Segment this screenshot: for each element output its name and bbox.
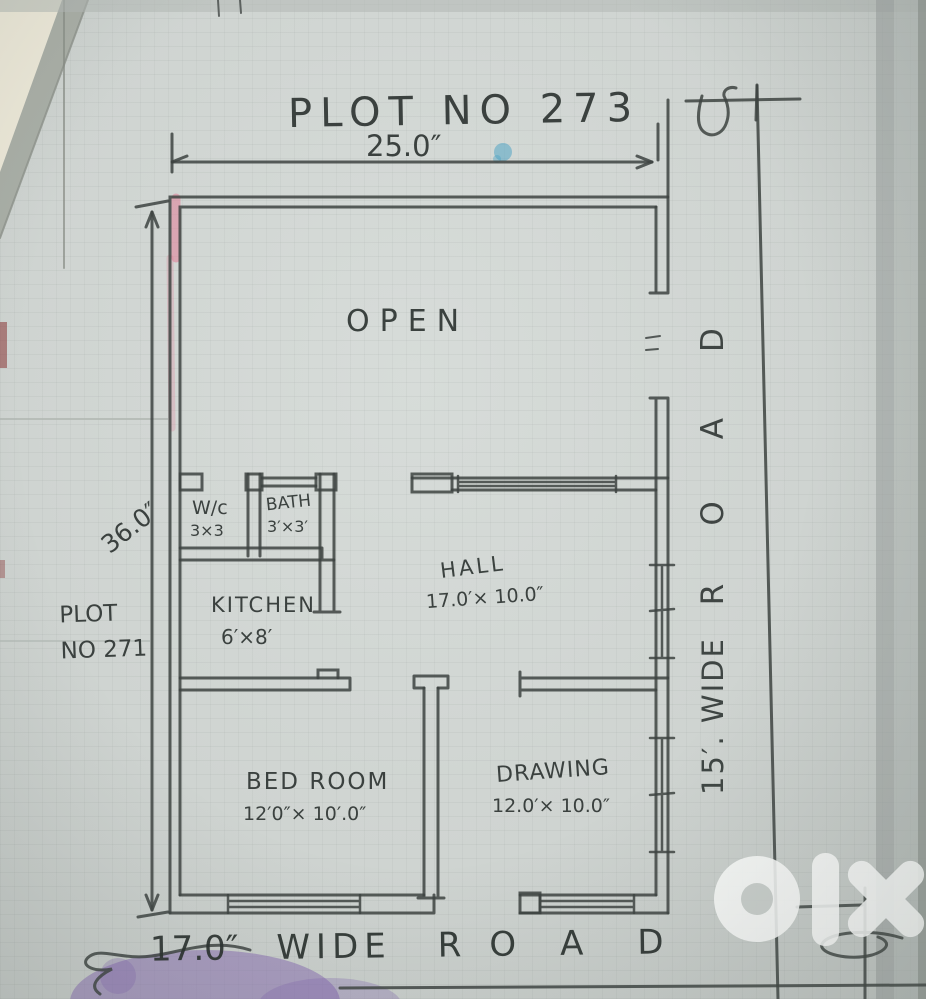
right-road-letter-d: D [695, 328, 731, 352]
right-road-letter-r: R [695, 584, 731, 606]
bedroom-label: BED ROOM [246, 770, 389, 794]
open-area-label: OPEN [346, 306, 469, 338]
wc-size-label: 3×3 [190, 523, 224, 540]
drawing-room-size-label: 12.0′× 10.0″ [492, 797, 610, 817]
right-road-label: 15′. WIDE R O A D [686, 215, 740, 795]
top-dimension-label: 25.0″ [366, 131, 441, 161]
bottom-road-wide: WIDE [276, 926, 392, 968]
bottom-road-label: 17.0″ WIDE R O A D [150, 922, 664, 969]
dimension-line-left [136, 201, 168, 917]
kitchen-size-label: 6′×8′ [221, 627, 272, 648]
windows [228, 476, 674, 913]
bottom-road-letter-o: O [489, 924, 516, 964]
right-road-letter-a: A [695, 418, 731, 439]
kitchen-label: KITCHEN [211, 594, 316, 616]
paper-fold [0, 0, 88, 268]
right-road-letter-o: O [695, 501, 731, 525]
gate-mark [699, 87, 737, 134]
plot-title: PLOT NO 273 [288, 87, 641, 135]
bottom-road-dimension: 17.0″ [150, 928, 239, 969]
neighbor-plot-line1: PLOT [59, 601, 118, 629]
bedroom-size-label: 12′0″× 10′.0″ [243, 805, 366, 825]
bottom-road-letter-d: D [637, 922, 664, 962]
bath-size-label: 3′×3′ [267, 519, 308, 536]
floor-plan-photo: PLOT NO 273 25.0″ OPEN W/c 3×3 BATH 3′×3… [0, 0, 926, 999]
neighbor-plot-line2: NO 271 [60, 635, 147, 664]
outer-walls [170, 100, 668, 913]
floor-plan-drawing [0, 0, 926, 999]
neighbor-plot-label: PLOTNO 271 [59, 596, 148, 670]
wc-label: W/c [192, 499, 228, 519]
photo-artifacts [0, 0, 926, 999]
bottom-road-letter-r: R [437, 925, 461, 965]
interior-walls [180, 474, 668, 898]
right-road-width: 15′. WIDE [696, 637, 730, 795]
bottom-road-letter-a: A [560, 924, 584, 964]
road-lines [340, 85, 926, 999]
